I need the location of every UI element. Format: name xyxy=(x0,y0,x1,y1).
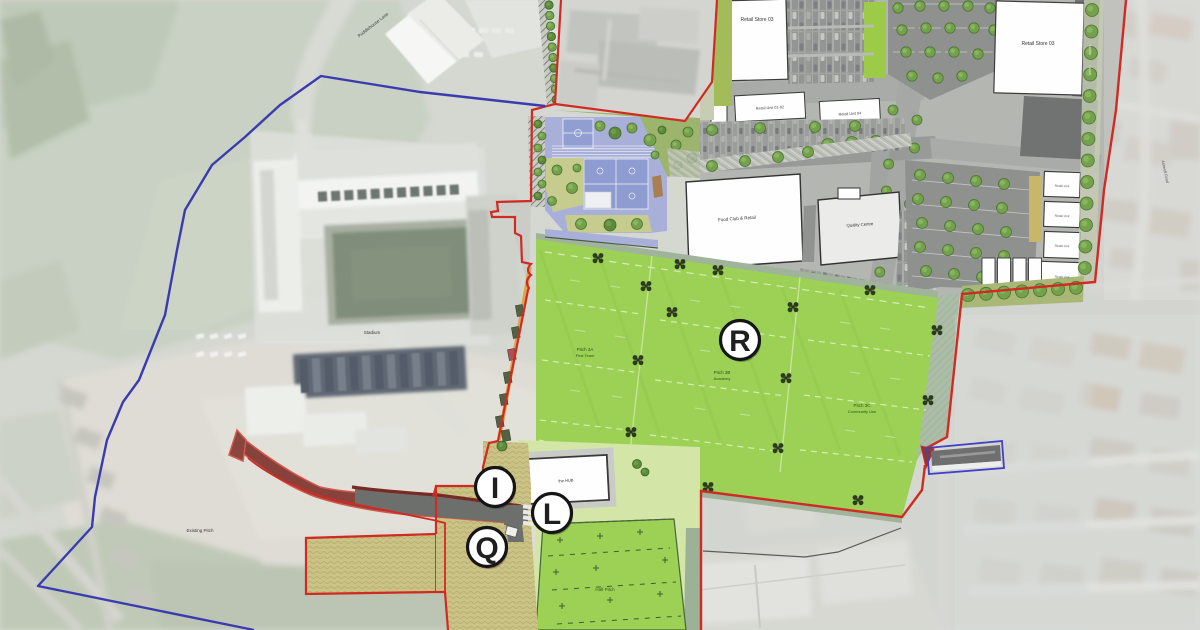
svg-text:Service: Service xyxy=(1088,45,1092,56)
svg-text:Retail Unit: Retail Unit xyxy=(1055,214,1070,219)
svg-text:Pitch 3A: Pitch 3A xyxy=(577,347,594,352)
svg-text:L: L xyxy=(543,498,561,531)
svg-text:Retail Unit: Retail Unit xyxy=(1055,184,1070,189)
svg-text:Academy: Academy xyxy=(714,376,731,381)
svg-text:Existing Pitch: Existing Pitch xyxy=(186,528,214,533)
svg-text:I: I xyxy=(491,472,499,505)
svg-text:Pitch 3C: Pitch 3C xyxy=(853,403,871,408)
svg-text:R: R xyxy=(729,325,751,358)
svg-text:Pitch 3B: Pitch 3B xyxy=(714,370,731,375)
svg-text:Community Use: Community Use xyxy=(848,409,877,414)
svg-text:Stadium: Stadium xyxy=(364,330,381,335)
svg-text:the HUB: the HUB xyxy=(558,478,574,484)
svg-text:Q: Q xyxy=(475,532,498,565)
svg-text:Half Pitch: Half Pitch xyxy=(595,587,615,592)
svg-text:Layout: Layout xyxy=(1088,65,1092,75)
svg-text:Retail Unit: Retail Unit xyxy=(1055,275,1070,280)
svg-text:Retail Store 03: Retail Store 03 xyxy=(1021,41,1054,47)
svg-text:First Team: First Team xyxy=(576,353,595,358)
svg-text:Retail Unit: Retail Unit xyxy=(1055,244,1070,249)
svg-text:Retail Store 03: Retail Store 03 xyxy=(740,17,773,23)
